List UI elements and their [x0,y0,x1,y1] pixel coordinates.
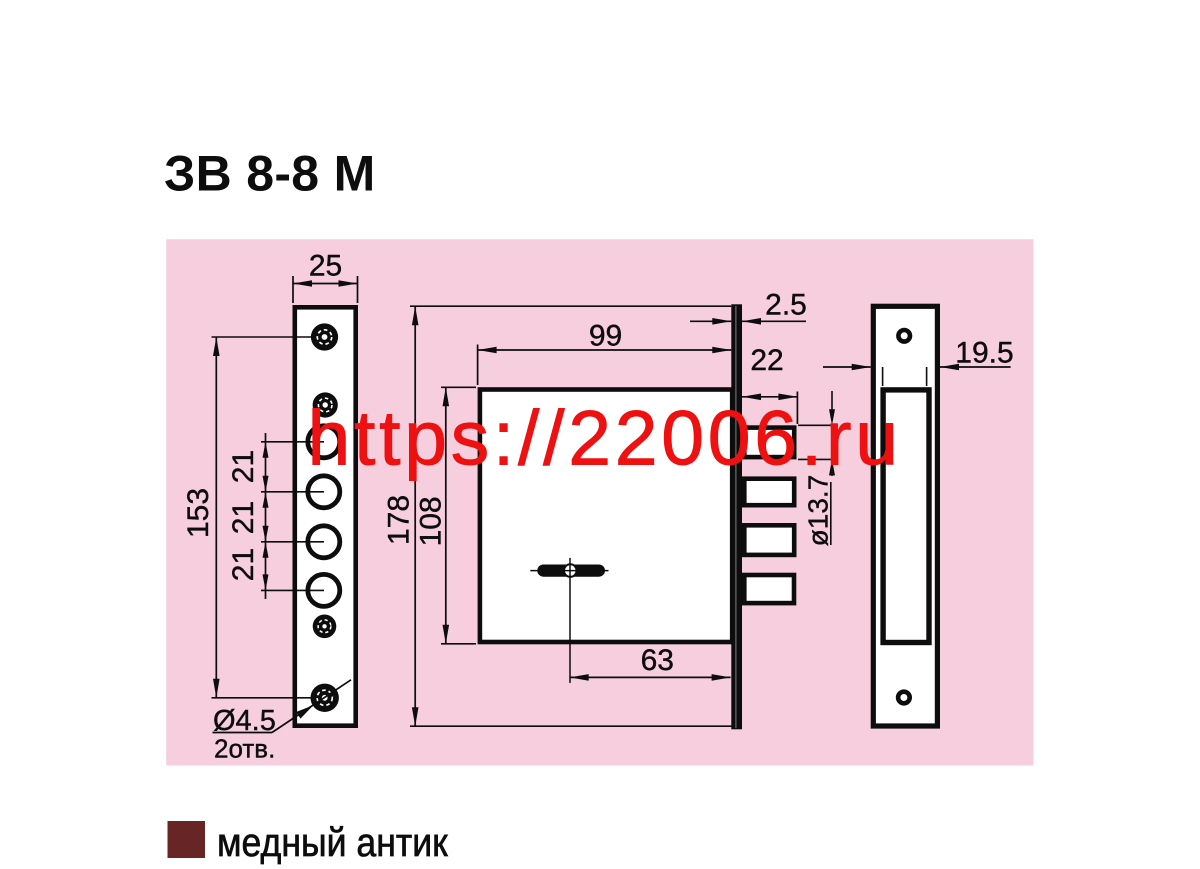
svg-text:2отв.: 2отв. [214,734,275,764]
svg-text:22: 22 [750,344,783,377]
svg-text:2.5: 2.5 [765,288,807,321]
svg-text:медный антик: медный антик [217,821,448,865]
svg-text:19.5: 19.5 [955,336,1013,369]
svg-text:ЗВ 8-8 М: ЗВ 8-8 М [164,146,376,202]
svg-text:108: 108 [414,496,447,546]
svg-text:21: 21 [227,501,260,534]
svg-text:21: 21 [227,450,260,483]
svg-text:https://22006.ru: https://22006.ru [308,396,902,482]
svg-text:ø13.7: ø13.7 [802,475,833,547]
svg-text:25: 25 [309,250,342,283]
svg-text:178: 178 [383,495,416,545]
svg-text:63: 63 [641,644,674,677]
svg-text:153: 153 [182,488,215,538]
svg-text:21: 21 [227,548,260,581]
svg-text:99: 99 [589,320,622,353]
